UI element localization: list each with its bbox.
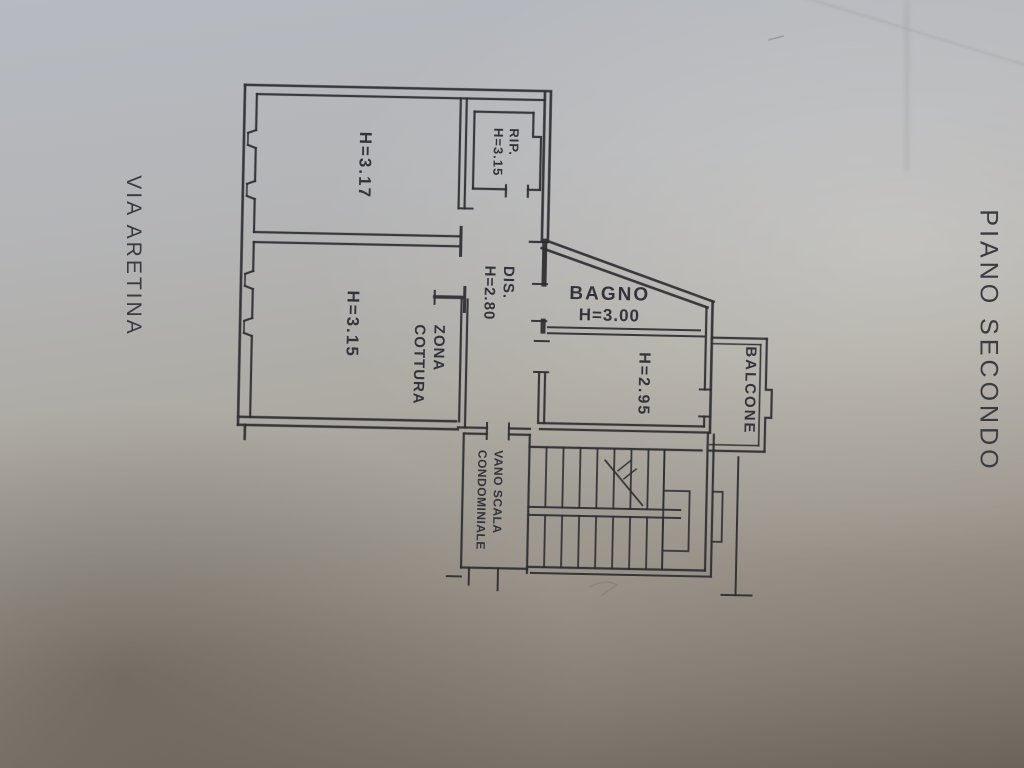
stairwell-line1: VANO SCALA [488, 450, 506, 550]
divider-wall [254, 223, 462, 255]
stairwell-label: VANO SCALA CONDOMINIALE [472, 450, 506, 551]
room1-right-wall [459, 98, 475, 208]
stairwell-line2: CONDOMINIALE [472, 450, 490, 550]
floor-plan: H=3.17 RIP. H=3.15 DIS. H=2.80 H=3.15 ZO… [0, 0, 1024, 768]
section-line [722, 457, 755, 596]
kitchen-area-line1: ZONA [427, 325, 448, 406]
storage-height-label: H=3.15 [490, 128, 507, 177]
bathroom-name: BAGNO [569, 283, 650, 307]
hall-label: DIS. H=2.80 [478, 265, 517, 321]
hall-name: DIS. [497, 266, 517, 321]
bathroom-height-label: H=3.00 [569, 305, 650, 326]
room-bottom-left-height-label: H=3.15 [341, 290, 362, 358]
storage-label: RIP. H=3.15 [490, 128, 522, 177]
balcony-label: BALCONE [740, 346, 759, 435]
kitchen-area-line2: COTTURA [408, 324, 429, 405]
storage-name: RIP. [505, 128, 522, 177]
room-top-left-height-label: H=3.17 [354, 131, 375, 199]
kitchen-area-label: ZONA COTTURA [408, 324, 449, 405]
staircase [527, 431, 724, 577]
bathroom-label: BAGNO H=3.00 [569, 283, 651, 326]
photographed-floor-plan: VIA ARETINA PIANO SECONDO [0, 0, 1024, 768]
room-right-height-label: H=2.95 [633, 352, 652, 416]
floor-plan-drawing [0, 0, 1024, 768]
bottom-wall [238, 417, 458, 430]
hall-height-label: H=2.80 [478, 265, 498, 320]
